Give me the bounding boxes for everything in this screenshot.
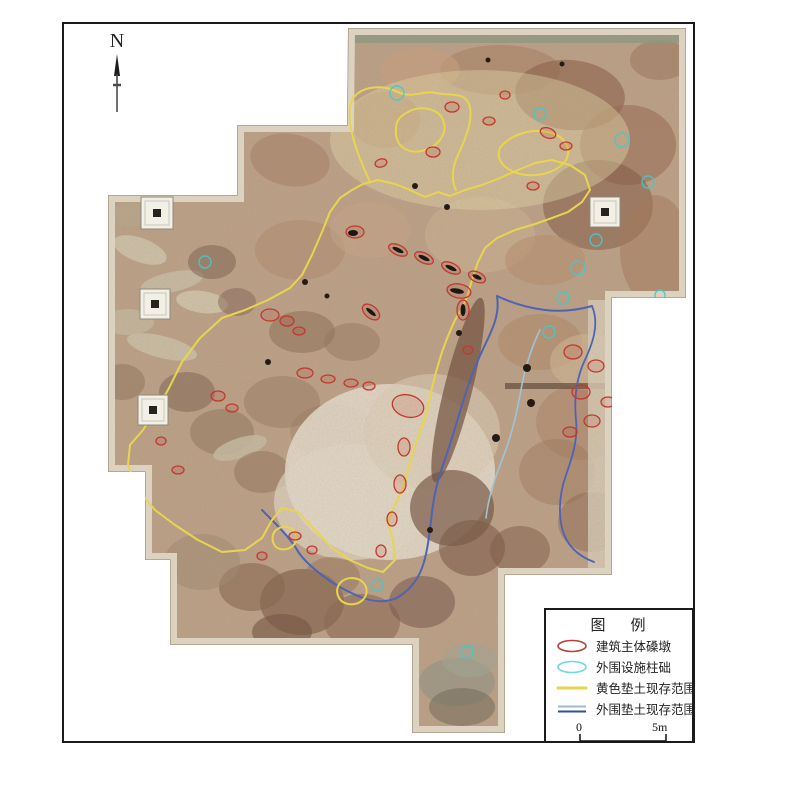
legend-item-yellow-fill-extent: 黄色垫土现存范围 — [546, 677, 692, 698]
scale-bar: 0 5m — [546, 720, 692, 746]
north-label: N — [100, 30, 134, 52]
scale-bar-icon — [546, 732, 696, 744]
legend-item-label: 黄色垫土现存范围 — [596, 678, 696, 697]
legend-item-label: 外围垫土现存范围 — [596, 699, 696, 718]
legend-item-label: 建筑主体磉墩 — [596, 636, 671, 655]
cyan-ellipse-icon — [554, 659, 592, 675]
north-arrow-icon — [110, 52, 124, 114]
yellow-line-icon — [554, 680, 592, 696]
legend-title: 图 例 — [546, 614, 692, 635]
legend-box: 图 例 建筑主体磉墩 外围设施柱础 黄色垫土现存范围 外围垫土现存 — [544, 608, 694, 743]
figure-page: N 图 例 建筑主体磉墩 外围设施柱础 黄色垫土现存范围 — [0, 0, 800, 794]
legend-item-outer-fill-extent: 外围垫土现存范围 — [546, 698, 692, 719]
legend-item-peripheral-column-base: 外围设施柱础 — [546, 656, 692, 677]
red-ellipse-icon — [554, 638, 592, 654]
double-blue-line-icon — [554, 701, 592, 717]
north-arrow: N — [100, 30, 134, 116]
legend-item-main-pier: 建筑主体磉墩 — [546, 635, 692, 656]
legend-item-label: 外围设施柱础 — [596, 657, 671, 676]
